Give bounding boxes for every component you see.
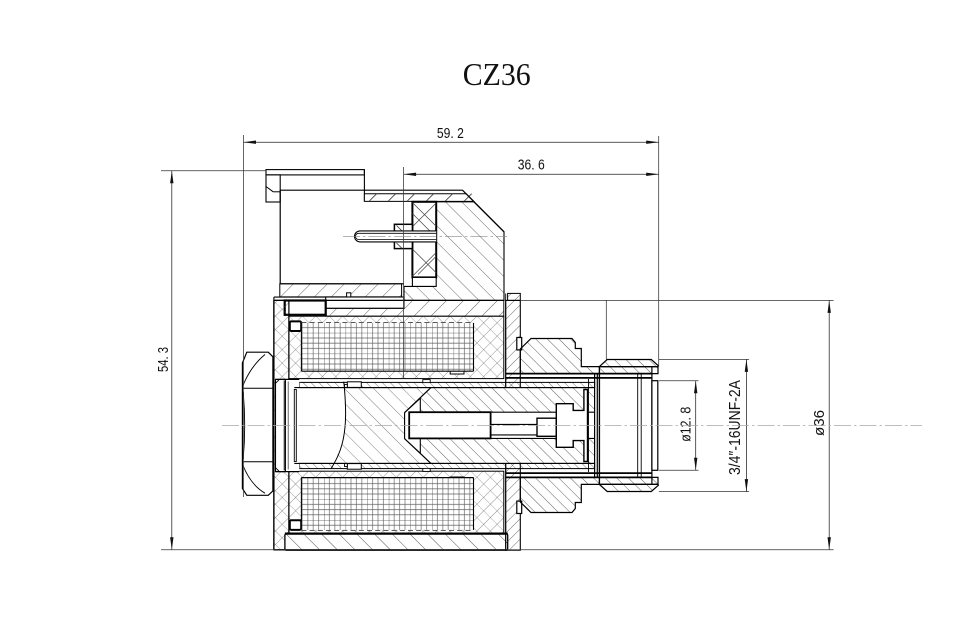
svg-text:CZ36: CZ36	[463, 56, 531, 92]
svg-text:59. 2: 59. 2	[437, 126, 464, 142]
svg-text:3/4″-16UNF-2A: 3/4″-16UNF-2A	[727, 380, 744, 475]
svg-text:54. 3: 54. 3	[156, 347, 172, 372]
svg-text:ø36: ø36	[812, 410, 828, 436]
svg-text:36. 6: 36. 6	[518, 158, 545, 174]
svg-text:ø12. 8: ø12. 8	[677, 407, 694, 442]
